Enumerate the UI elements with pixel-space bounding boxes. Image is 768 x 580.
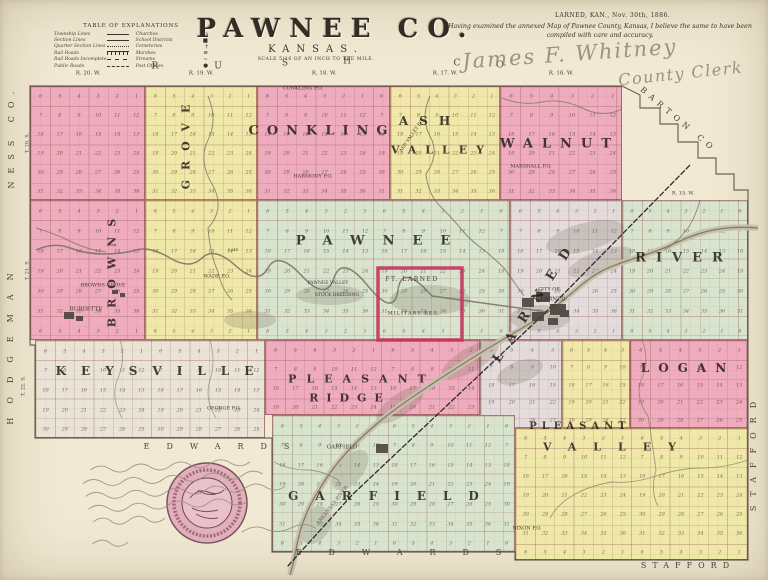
section-number: 7 — [510, 114, 513, 119]
section-number: 32 — [298, 522, 304, 527]
section-number: 32 — [542, 531, 548, 536]
section-number: 28 — [81, 428, 87, 433]
section-number: 17 — [298, 463, 304, 468]
section-number: 1 — [738, 348, 741, 353]
section-number: 31 — [523, 531, 529, 536]
section-number: 26 — [717, 512, 723, 517]
section-number: 26 — [354, 503, 360, 508]
section-number: 2 — [461, 210, 464, 215]
section-number: 27 — [573, 290, 579, 295]
section-number: 6 — [393, 542, 396, 547]
section-number: 9 — [318, 444, 321, 449]
section-number: 19 — [638, 401, 644, 406]
section-number: 30 — [639, 512, 645, 517]
cemeteries-icon: † — [186, 44, 208, 50]
section-number: 3 — [582, 550, 585, 555]
section-number: 16 — [81, 388, 87, 393]
section-number: 32 — [283, 190, 289, 195]
section-number: 29 — [298, 503, 304, 508]
section-number: 30 — [391, 503, 397, 508]
section-number: 22 — [697, 493, 703, 498]
section-number: 34 — [683, 310, 689, 315]
section-number: 19 — [152, 270, 158, 275]
section-number: 21 — [317, 483, 323, 488]
section-number: 30 — [265, 290, 271, 295]
section-number: 10 — [581, 456, 587, 461]
section-number: 27 — [697, 512, 703, 517]
section-number: 11 — [701, 230, 707, 235]
section-number: 21 — [665, 270, 671, 275]
section-number: 29 — [62, 428, 68, 433]
section-number: 4 — [422, 210, 425, 215]
section-number: 23 — [592, 270, 598, 275]
section-number: 18 — [157, 388, 163, 393]
section-number: 13 — [133, 250, 139, 255]
section-number: 2 — [228, 95, 231, 100]
section-number: 30 — [37, 290, 43, 295]
border-label-rush-c: C — [454, 60, 461, 69]
certification-dateline: LARNED, KAN., Nov. 30th, 1886. — [555, 12, 670, 19]
section-number: 2 — [702, 330, 705, 335]
township-pleasant-valley-north: 654378910181716151920212230292827 — [562, 340, 630, 428]
section-number: 33 — [189, 190, 195, 195]
section-number: 12 — [489, 114, 495, 119]
legend-item-label: Streams — [136, 57, 155, 62]
section-number: 5 — [587, 348, 590, 353]
section-number: 19 — [37, 270, 43, 275]
section-number: 23 — [227, 152, 233, 157]
section-number: 26 — [459, 290, 465, 295]
place-harmony-po: HARMONY P.O. — [293, 175, 333, 180]
section-number: 3 — [571, 95, 574, 100]
section-number: 25 — [373, 503, 379, 508]
section-number: 6 — [510, 95, 513, 100]
section-number: 8 — [660, 456, 663, 461]
section-number: 5 — [648, 330, 651, 335]
section-number: 7 — [630, 230, 633, 235]
section-number: 21 — [677, 401, 683, 406]
section-number: 25 — [719, 290, 725, 295]
township-logan: 6543217891011121817161514131920212223243… — [630, 340, 748, 428]
section-number: 27 — [208, 171, 214, 176]
section-number: 1 — [372, 349, 375, 354]
section-number: 4 — [318, 424, 321, 429]
section-number: 11 — [717, 456, 723, 461]
section-number: 21 — [420, 270, 426, 275]
section-number: 2 — [356, 542, 359, 547]
section-number: 18 — [488, 383, 494, 388]
section-number: 20 — [401, 270, 407, 275]
section-number: 31 — [629, 310, 635, 315]
section-number: 7 — [44, 369, 47, 374]
section-number: 13 — [620, 475, 626, 480]
section-number: 33 — [549, 190, 555, 195]
legend-item-label: Public Roads — [54, 64, 84, 69]
section-number: 3 — [441, 210, 444, 215]
section-number: 12 — [133, 230, 139, 235]
section-number: 27 — [569, 171, 575, 176]
section-number: 18 — [273, 386, 279, 391]
section-number: 9 — [563, 456, 566, 461]
section-number: 20 — [171, 152, 177, 157]
section-number: 29 — [401, 290, 407, 295]
section-number: 12 — [359, 114, 365, 119]
section-number: 5 — [299, 542, 302, 547]
section-number: 21 — [81, 408, 87, 413]
legend-title: TABLE OF EXPLANATIONS — [54, 23, 208, 29]
township-row-label-t22s: T. 22. S. — [22, 376, 27, 396]
section-number: 21 — [76, 152, 82, 157]
section-number: 29 — [415, 171, 421, 176]
section-number: 8 — [510, 366, 513, 371]
section-number: 23 — [459, 270, 465, 275]
section-number: 13 — [610, 250, 616, 255]
place-city-of: CITY OF — [538, 288, 560, 293]
section-number: 12 — [610, 230, 616, 235]
section-number: 34 — [321, 190, 327, 195]
section-number: 26 — [340, 171, 346, 176]
section-number: 31 — [397, 190, 403, 195]
section-number: 16 — [602, 383, 608, 388]
section-number: 16 — [529, 383, 535, 388]
section-number: 16 — [420, 250, 426, 255]
section-number: 6 — [383, 330, 386, 335]
section-number: 20 — [658, 493, 664, 498]
section-number: 1 — [738, 437, 741, 442]
section-number: 7 — [738, 230, 741, 235]
section-number: 1 — [247, 95, 250, 100]
section-number: 17 — [536, 250, 542, 255]
range-label-r18w: R. 18. W. — [312, 71, 337, 77]
section-number: 25 — [359, 171, 365, 176]
range-label-r17w: R. 17. W. — [433, 71, 458, 77]
section-number: 6 — [641, 550, 644, 555]
section-number: 20 — [292, 405, 298, 410]
section-number: 15 — [95, 250, 101, 255]
section-number: 2 — [593, 330, 596, 335]
section-number: 5 — [172, 210, 175, 215]
section-number: 15 — [208, 250, 214, 255]
section-number: 18 — [397, 133, 403, 138]
section-number: 14 — [354, 463, 360, 468]
section-number: 10 — [550, 366, 556, 371]
section-number: 27 — [447, 503, 453, 508]
section-number: 28 — [76, 171, 82, 176]
section-number: 16 — [189, 250, 195, 255]
section-number: 14 — [119, 388, 125, 393]
section-number: 28 — [665, 290, 671, 295]
section-number: 17 — [658, 475, 664, 480]
section-number: 36 — [359, 190, 365, 195]
section-number: 6 — [630, 330, 633, 335]
section-number: 35 — [354, 522, 360, 527]
section-number: 32 — [284, 310, 290, 315]
section-number: 1 — [738, 550, 741, 555]
section-number: 21 — [429, 483, 435, 488]
section-number: 17 — [409, 386, 415, 391]
section-number: 26 — [589, 171, 595, 176]
section-number: 30 — [381, 290, 387, 295]
section-number: 5 — [544, 550, 547, 555]
section-number: 30 — [264, 171, 270, 176]
section-number: 27 — [440, 290, 446, 295]
section-number: 29 — [283, 171, 289, 176]
section-number: 32 — [647, 310, 653, 315]
section-number: 12 — [245, 230, 251, 235]
township-grove-strip-north: 6543217891011121817161514131920212223243… — [145, 86, 257, 200]
section-number: 20 — [509, 401, 515, 406]
section-number: 32 — [57, 190, 63, 195]
section-number: 16 — [303, 250, 309, 255]
section-number: 18 — [42, 388, 48, 393]
section-number: 6 — [154, 330, 157, 335]
section-number: 2 — [468, 542, 471, 547]
section-number: 12 — [610, 114, 616, 119]
section-number: 30 — [397, 171, 403, 176]
section-number: 6 — [505, 424, 508, 429]
section-number: 19 — [157, 408, 163, 413]
section-number: 20 — [409, 405, 415, 410]
section-number: 6 — [380, 95, 383, 100]
section-number: 4 — [191, 210, 194, 215]
section-number: 5 — [537, 330, 540, 335]
section-number: 1 — [374, 424, 377, 429]
legend-line-sample-section — [107, 40, 129, 41]
section-number: 18 — [279, 463, 285, 468]
section-number: 10 — [447, 444, 453, 449]
section-number: 13 — [736, 383, 742, 388]
legend-item-label: Section Lines — [54, 38, 86, 43]
section-number: 2 — [593, 210, 596, 215]
section-number: 1 — [255, 349, 258, 354]
section-number: 3 — [450, 349, 453, 354]
section-number: 36 — [133, 190, 139, 195]
section-number: 35 — [459, 310, 465, 315]
section-number: 19 — [737, 270, 743, 275]
township-name-garfield: GARFIELD — [288, 490, 496, 502]
section-number: 10 — [208, 114, 214, 119]
section-number: 2 — [352, 349, 355, 354]
section-number: 28 — [677, 419, 683, 424]
section-number: 8 — [648, 230, 651, 235]
section-number: 19 — [273, 405, 279, 410]
section-number: 7 — [380, 114, 383, 119]
section-number: 15 — [550, 383, 556, 388]
section-number: 23 — [716, 401, 722, 406]
border-label-edwards-south: EDWARDS — [296, 549, 529, 557]
section-number: 30 — [42, 428, 48, 433]
place-george-po: GEORGE P.O. — [207, 407, 241, 412]
section-number: 7 — [519, 230, 522, 235]
section-number: 5 — [411, 349, 414, 354]
section-number: 22 — [95, 152, 101, 157]
section-number: 24 — [485, 483, 491, 488]
section-number: 1 — [135, 330, 138, 335]
section-number: 9 — [556, 230, 559, 235]
section-number: 6 — [383, 210, 386, 215]
section-number: 6 — [505, 542, 508, 547]
section-number: 23 — [342, 270, 348, 275]
section-number: 35 — [114, 190, 120, 195]
section-number: 36 — [133, 310, 139, 315]
section-number: 5 — [63, 349, 66, 354]
border-label-rush-u: U — [214, 63, 222, 72]
place-pawnee-valley-farm-2: STOCK BREEDING — [315, 294, 359, 299]
section-number: 3 — [684, 210, 687, 215]
range-label-r16w: R. 16. W. — [549, 71, 574, 77]
section-number: 19 — [378, 152, 384, 157]
section-number: 15 — [215, 388, 221, 393]
section-number: 25 — [620, 512, 626, 517]
section-number: 12 — [245, 114, 251, 119]
section-number: 15 — [95, 133, 101, 138]
border-label-ness-co: NESS CO. — [8, 84, 16, 189]
section-number: 25 — [362, 290, 368, 295]
section-number: 22 — [569, 152, 575, 157]
section-number: 9 — [430, 444, 433, 449]
section-number: 30 — [737, 290, 743, 295]
section-number: 36 — [362, 310, 368, 315]
section-number: 19 — [488, 401, 494, 406]
section-number: 20 — [657, 401, 663, 406]
section-number: 24 — [719, 270, 725, 275]
section-number: 9 — [191, 230, 194, 235]
section-number: 26 — [592, 290, 598, 295]
section-number: 35 — [470, 190, 476, 195]
section-number: 4 — [604, 348, 607, 353]
section-number: 31 — [503, 522, 509, 527]
legend-item-label: Marshes — [136, 51, 156, 56]
township-name-pleasant-v: PLEASANT — [529, 422, 631, 432]
state-seal — [167, 463, 247, 543]
section-number: 5 — [660, 550, 663, 555]
section-number: 24 — [245, 152, 251, 157]
section-number: 29 — [57, 171, 63, 176]
section-number: 31 — [508, 190, 514, 195]
section-number: 4 — [77, 95, 80, 100]
township-name-walnut: WALNUT — [500, 138, 620, 151]
legend-item-label: Quarter Section Lines — [54, 44, 105, 49]
section-number: 24 — [736, 401, 742, 406]
section-number: 27 — [208, 290, 214, 295]
section-number: 4 — [430, 424, 433, 429]
section-number: 21 — [529, 401, 535, 406]
section-number: 19 — [523, 493, 529, 498]
section-number: 3 — [449, 424, 452, 429]
section-number: 20 — [283, 152, 289, 157]
section-number: 6 — [524, 437, 527, 442]
section-number: 34 — [208, 190, 214, 195]
section-number: 1 — [612, 330, 615, 335]
section-number: 2 — [342, 95, 345, 100]
section-number: 25 — [133, 171, 139, 176]
section-number: 4 — [77, 210, 80, 215]
section-number: 4 — [556, 210, 559, 215]
section-number: 18 — [639, 475, 645, 480]
section-number: 4 — [191, 330, 194, 335]
section-number: 9 — [604, 366, 607, 371]
section-number: 12 — [479, 230, 485, 235]
section-number: 20 — [528, 152, 534, 157]
legend-item-label: Churches — [136, 32, 158, 37]
section-number: 14 — [114, 133, 120, 138]
section-number: 24 — [362, 270, 368, 275]
section-number: 20 — [177, 408, 183, 413]
section-number: 22 — [323, 270, 329, 275]
legend-line-sample-quarter — [107, 46, 129, 47]
section-number: 6 — [570, 348, 573, 353]
section-number: 36 — [479, 310, 485, 315]
section-number: 33 — [303, 310, 309, 315]
section-number: 8 — [58, 114, 61, 119]
section-number: 19 — [152, 152, 158, 157]
section-number: 13 — [362, 250, 368, 255]
legend-item-label: Post Offices — [136, 64, 163, 69]
section-number: 1 — [480, 330, 483, 335]
place-nixon-po: NIXON P.O. — [512, 527, 541, 532]
section-number: 24 — [610, 270, 616, 275]
section-number: 34 — [335, 522, 341, 527]
section-number: 1 — [361, 95, 364, 100]
section-number: 1 — [363, 210, 366, 215]
section-number: 20 — [410, 483, 416, 488]
section-number: 29 — [658, 512, 664, 517]
legend-line-sample-rail2 — [107, 59, 129, 60]
section-number: 33 — [189, 310, 195, 315]
section-number: 36 — [719, 310, 725, 315]
section-number: 28 — [317, 503, 323, 508]
section-number: 2 — [461, 330, 464, 335]
section-number: 20 — [62, 408, 68, 413]
section-number: 15 — [448, 386, 454, 391]
section-number: 5 — [285, 95, 288, 100]
border-label-stafford-south: STAFFORD — [641, 562, 735, 570]
section-number: 28 — [303, 290, 309, 295]
section-number: 3 — [621, 348, 624, 353]
range-label-r20w: R. 20. W. — [76, 71, 101, 77]
section-number: 33 — [434, 190, 440, 195]
section-number: 34 — [95, 190, 101, 195]
section-number: 32 — [410, 522, 416, 527]
section-number: 11 — [340, 114, 346, 119]
section-number: 2 — [602, 550, 605, 555]
township-browns-grove-south: 6543217891011121817161514131920212223243… — [30, 200, 145, 340]
section-number: 4 — [305, 210, 308, 215]
section-number: 6 — [44, 349, 47, 354]
section-number: 15 — [452, 133, 458, 138]
section-number: 35 — [589, 190, 595, 195]
section-number: 29 — [528, 171, 534, 176]
section-number: 30 — [629, 290, 635, 295]
section-number: 33 — [429, 522, 435, 527]
section-number: 24 — [359, 152, 365, 157]
section-number: 31 — [264, 190, 270, 195]
map-subtitle: KANSAS. — [226, 44, 406, 55]
section-number: 26 — [227, 290, 233, 295]
section-number: 30 — [152, 290, 158, 295]
section-number: 4 — [431, 349, 434, 354]
section-number: 23 — [600, 493, 606, 498]
section-number: 22 — [95, 270, 101, 275]
section-number: 9 — [531, 366, 534, 371]
section-number: 4 — [305, 330, 308, 335]
section-number: 31 — [37, 190, 43, 195]
section-number: 6 — [154, 210, 157, 215]
section-number: 2 — [356, 424, 359, 429]
section-number: 2 — [121, 349, 124, 354]
section-number: 28 — [196, 428, 202, 433]
section-number: 28 — [561, 512, 567, 517]
